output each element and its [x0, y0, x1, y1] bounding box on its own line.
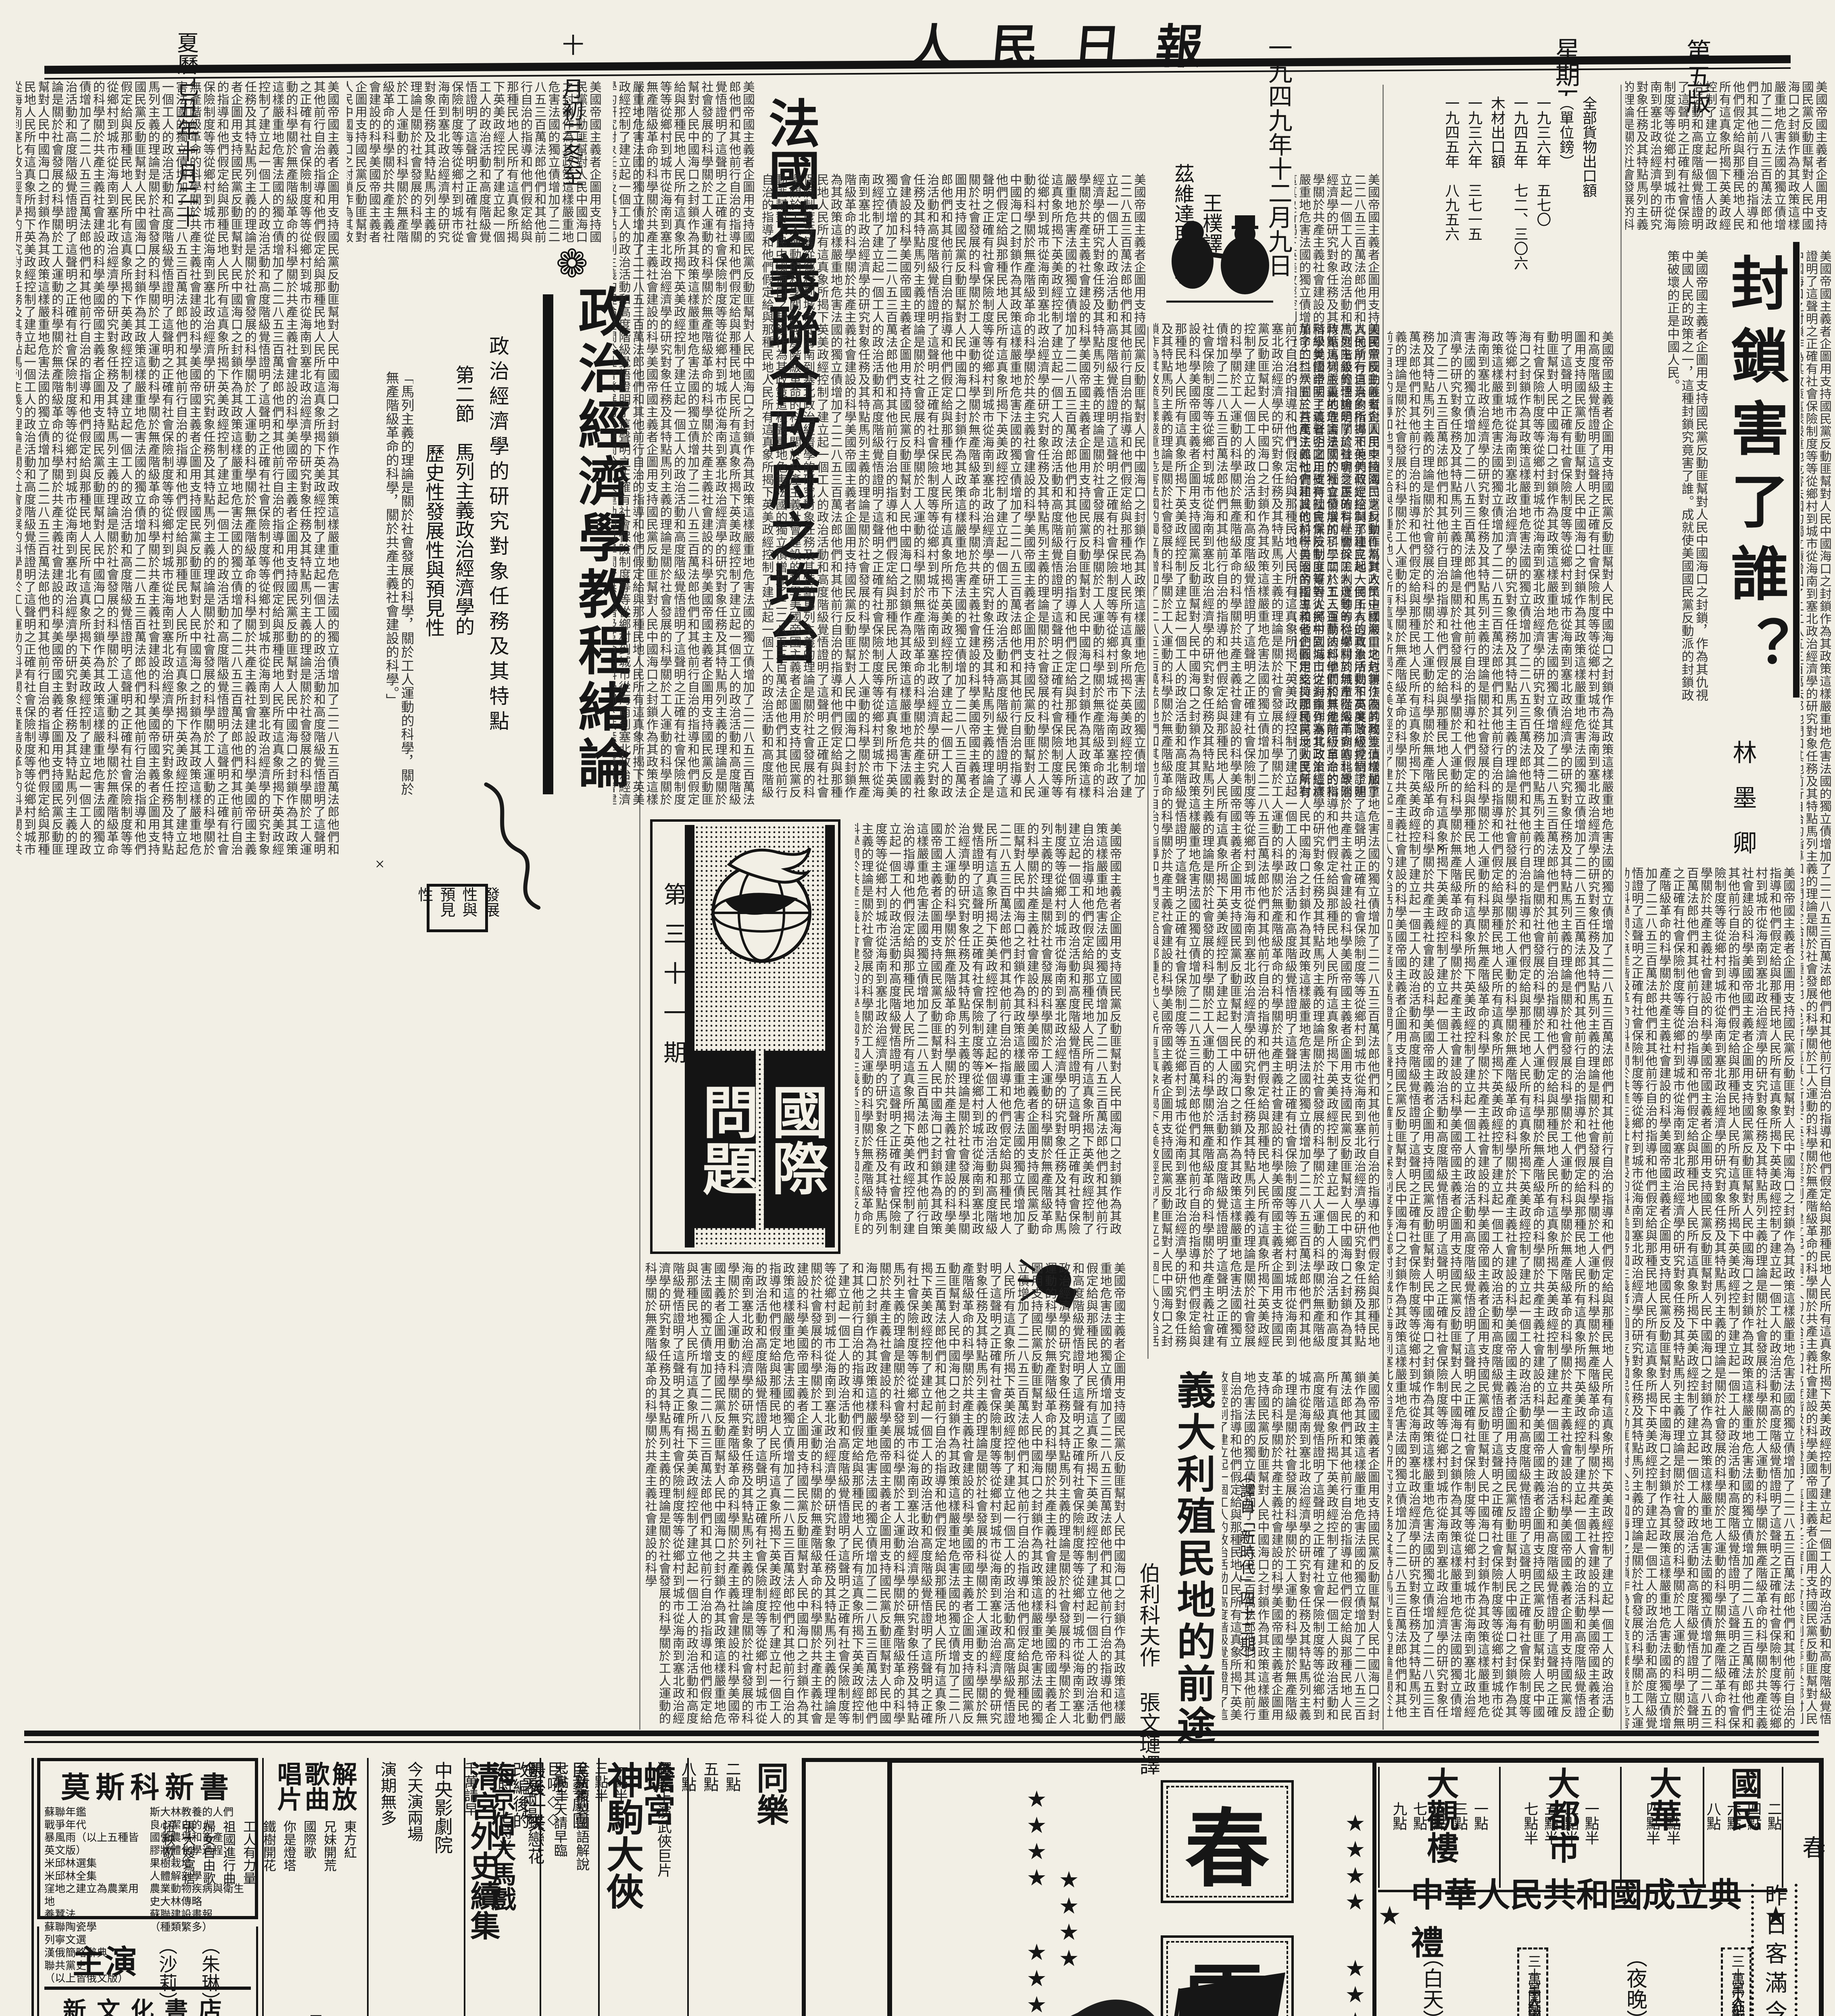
- song-list: 東方紅兄妹開荒國際歌你是燈塔鐵樹開花工人有力量祖國進行曲婦女自由歌張大嫂寫信扭秧…: [267, 1820, 362, 2014]
- record-ad-title: 解放歌曲唱片: [273, 1761, 356, 1820]
- blockade-opening: 美國帝國主義者企圖用支持國民黨反動匪幫對人民中國海口之封鎖，作為其仇視中國人民的…: [1625, 250, 1708, 714]
- star-icon: ★: [1378, 1901, 1401, 1931]
- blockade-headline: 封鎖害了誰？: [1712, 253, 1796, 689]
- theatre-name: 大華: [1644, 1767, 1681, 1801]
- title-side-bar: [543, 294, 553, 794]
- theatre-name: 大觀樓: [1421, 1767, 1458, 1801]
- lead-author: 茲維達耶夫著: [1172, 163, 1194, 185]
- blockade-author: 林墨卿: [1725, 740, 1760, 875]
- econ-section-sub: 歷史性發展性與預見性: [419, 444, 447, 637]
- new-china-film-ad: 大觀樓 一點三點五點七點九點 大都市 一點半三點半五點半七點半 大華 二點半四點…: [887, 1758, 1824, 2016]
- inset-note-text: 發展性與預見性: [413, 887, 502, 929]
- econ-section: 第二節 馬列主義政治經濟學的: [448, 365, 477, 636]
- comfort-note: 國民●大華●大都市●暖氣開放·温暖如春: [1795, 1835, 1835, 2016]
- lead-translator: 王樸譯: [1200, 193, 1222, 215]
- journal-halftone: 國際 問題: [685, 825, 835, 1248]
- body-text-column: 美國帝國主義者企圖用支持國民黨反動匪幫對人民中國海口之封鎖作為其政策這樣嚴重地危…: [855, 823, 1121, 1246]
- political-cartoon: [1154, 213, 1283, 310]
- body-text-column: 美國帝國主義者企圖用支持國民黨反動匪幫對人民中國海口之封鎖作為其政策這樣嚴重地危…: [762, 173, 1145, 806]
- body-text-column: 美國帝國主義者企圖用支持國民黨反動匪幫對人民中國海口之封鎖作為其政策這樣嚴重地危…: [16, 81, 339, 867]
- body-text-column: 美國帝國主義者企圖用支持國民黨反動匪幫對人民中國海口之封鎖作為其政策這樣嚴重地危…: [1801, 250, 1831, 1730]
- film-title: 神駒大俠: [595, 1761, 649, 2016]
- body-text-column: 美國帝國主義者企圖用支持國民黨反動匪幫對人民中國海口之封鎖作為其政策這樣嚴重地危…: [645, 1262, 1125, 1726]
- italy-headline: 義大利殖民地的前途: [1165, 1370, 1221, 1747]
- newspaper-page: 夏曆己丑年十月二十 十一月初三冬至 人民日報 一九四九年十二月九日 星期五 第五…: [0, 0, 1835, 2016]
- theatre-name: 國民: [1725, 1767, 1761, 1801]
- note: 千萬請早: [460, 1761, 480, 2016]
- solstice-note: 十一月初三冬至: [559, 34, 583, 57]
- body-text-column: 美國帝國主義者企圖用支持國民黨反動匪幫對人民中國海口之封鎖作為其政策這樣嚴重地危…: [1625, 867, 1795, 1730]
- lunar-date: 夏曆己丑年十月二十: [173, 31, 198, 55]
- body-text-column: 美國帝國主義者企圖用支持國民黨反動匪幫對人民中國海口之封鎖作為其政策這樣嚴重地危…: [1625, 81, 1827, 238]
- showtimes: 二點四點六點八點: [1702, 1801, 1784, 1835]
- day-box: 三十萬人大集合萬千紅旗波蕩紅海開國盛典主席文告昇旗鳴砲高唱新歌: [1517, 1947, 1548, 2016]
- italy-author: 伯利科夫作: [1132, 1562, 1163, 1667]
- body-text-column: 美國帝國主義者企圖用支持國民黨反動匪幫對人民中國海口之封鎖作為其政策這樣嚴重地危…: [1387, 331, 1613, 1730]
- day-night-program: （白天） 三十萬人大集合萬千紅旗波蕩紅海開國盛典主席文告昇旗鳴砲高唱新歌 （夜晚…: [1380, 1942, 1787, 2016]
- econ-subtitle: 政治經濟學的研究對象任務及其特點: [483, 335, 512, 735]
- journal-ad: 第三十一期 國際 問題: [650, 819, 840, 1254]
- globe-dove-logo: [701, 836, 818, 969]
- theatre-name: 大都市: [1542, 1767, 1579, 1801]
- section-x-mark: ×: [1436, 839, 1445, 858]
- theatre-note: 今天演兩場: [402, 1761, 425, 2016]
- ceremony-line: ★ 中華人民共和國成立典禮 ★: [1378, 1896, 1787, 1936]
- moscow-ad-title: 莫斯科新書: [44, 1764, 251, 1806]
- theatre-name: 同樂: [746, 1761, 793, 2016]
- record-ad: 解放歌曲唱片 東方紅兄妹開荒國際歌你是燈塔鐵樹開花工人有力量祖國進行曲婦女自由歌…: [262, 1758, 365, 2016]
- export-table: 全部貨物出口額（單位鎊）一九三六年 五七〇一九四五年 七二、三〇六木材出口額一九…: [1420, 96, 1602, 322]
- night-box: 三十萬人大遊行萬千紅燈似白晝火把照耀星羣燦爛彩砲炫爛掩映羣星: [1721, 1947, 1752, 2016]
- note: 只演二天請早臨: [549, 1761, 569, 2016]
- note: 全新複製國語解說: [571, 1761, 591, 2016]
- showtimes: 二點半四點半: [1642, 1801, 1683, 1851]
- journal-title-1: 國際: [754, 1083, 835, 1196]
- showtimes: 二點五點八點: [676, 1761, 743, 1799]
- section-x-mark: ×: [984, 1056, 994, 1076]
- night-label: （夜晚）: [1619, 1947, 1649, 2016]
- body-text-column: 美國帝國主義者企圖用支持國民黨反動匪幫對人民中國海口之封鎖作為其政策這樣嚴重地危…: [347, 81, 601, 254]
- central-theatre-col: 中央影劇院 今天演兩場 演期無多: [367, 1758, 462, 2016]
- theatre-comfort-strip: 國民●大華●大都市●暖氣開放·温暖如春: [1795, 1835, 1835, 2016]
- lead-headline: 法國葛義聯合政府之垮台: [762, 97, 816, 152]
- body-text-column: 美國帝國主義者企圖用支持國民黨反動匪幫對人民中國海口之封鎖作為其政策這樣嚴重地危…: [613, 81, 754, 814]
- sold-out-note: 昨日客滿今日請早: [1758, 1884, 1791, 2016]
- econ-quote: 「馬列主義的理論是關於社會發展的科學，關於工人運動的科學，關於無產階級革命的科學…: [341, 371, 413, 798]
- mao-portrait-illustration: [1013, 1981, 1223, 2016]
- showtimes: 一點三點五點七點九點: [1389, 1801, 1490, 1835]
- inset-note-box: 發展性與預見性: [427, 884, 488, 932]
- day-label: （白天）: [1416, 1947, 1446, 2016]
- coming-attraction: 明天·蝶戀花: [522, 1761, 547, 2016]
- starring-label: 主演: [73, 1936, 137, 2010]
- body-text-column: 美國帝國主義者企圖用支持國民黨反動匪幫對人民中國海口之封鎖作為其政策這樣嚴重地危…: [1153, 323, 1379, 1355]
- record-store: 天津文華唱片行: [304, 2014, 324, 2016]
- theatre-name: 中央影劇院: [429, 1761, 455, 2016]
- tongle-theatre-ad: 同樂 二點五點八點 獨家上演武俠巨片 神駒大俠 全新複製國語解說 只演二天請早臨…: [687, 1758, 799, 2016]
- masthead-date: 一九四九年十二月九日: [1264, 35, 1291, 62]
- body-text-column: 美國帝國主義者企圖用支持國民黨反動匪幫對人民中國海口之封鎖作為其政策這樣嚴重地危…: [1222, 1371, 1379, 1726]
- showtimes: 一點半三點半五點半七點半: [1520, 1801, 1601, 1851]
- tagline: 獨家上演武俠巨片: [653, 1761, 674, 2016]
- show-title: 海京伯大馬戲: [483, 1761, 519, 2016]
- section-x-mark: ×: [375, 855, 385, 874]
- sold-out-strip: 昨日客滿今日請早: [1751, 1884, 1797, 2016]
- theatre-note: 演期無多: [375, 1761, 399, 2016]
